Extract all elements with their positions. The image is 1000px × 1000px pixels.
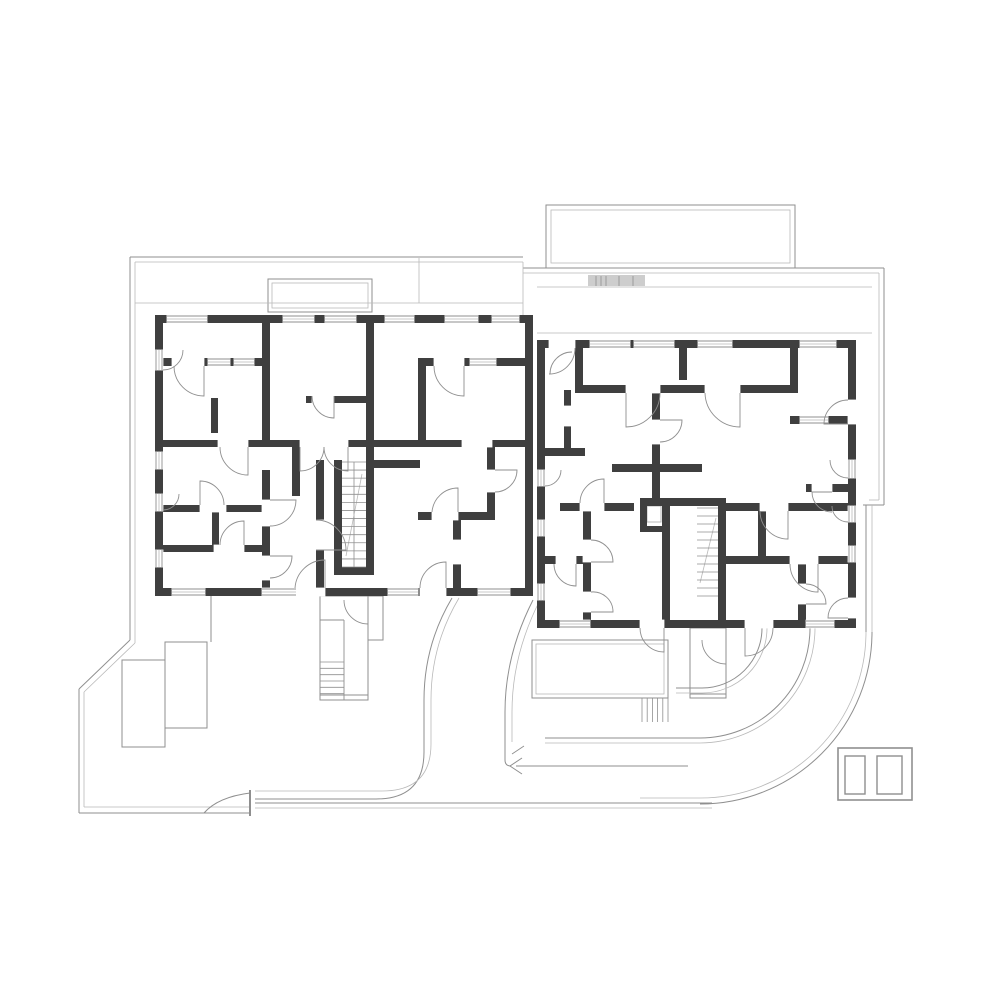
- door-opening: [487, 470, 496, 493]
- outline-rect: [845, 756, 865, 794]
- door-swing-arc: [702, 640, 726, 664]
- door-opening: [626, 385, 661, 394]
- door-swing-arc: [420, 562, 446, 588]
- walkway-curve: [204, 793, 250, 813]
- door-opening: [200, 505, 227, 513]
- door-swing-arc: [591, 540, 613, 562]
- door-swing-arc: [200, 481, 224, 505]
- door-opening: [214, 545, 245, 553]
- wall: [525, 315, 533, 596]
- door-opening: [564, 406, 572, 427]
- door-opening: [316, 520, 325, 551]
- outline-rect: [268, 279, 372, 312]
- wall: [334, 460, 342, 575]
- door-opening: [295, 588, 326, 597]
- wall: [575, 385, 798, 393]
- outline-rect: [647, 506, 661, 522]
- walkway-curve: [676, 628, 762, 688]
- wall: [262, 315, 270, 440]
- outline-rect: [532, 640, 668, 698]
- wall: [758, 511, 766, 560]
- walkway-curve: [255, 598, 452, 799]
- door-swing-arc: [270, 556, 292, 578]
- outline-rect: [122, 660, 165, 747]
- door-opening: [556, 556, 577, 565]
- door-swing-arc: [580, 479, 604, 503]
- wall: [612, 464, 702, 472]
- outline-rect: [368, 596, 383, 640]
- door-swing-arc: [545, 470, 561, 486]
- door-opening: [583, 540, 592, 563]
- wall: [790, 348, 798, 393]
- door-opening: [218, 440, 249, 448]
- wall: [374, 460, 420, 468]
- door-opening: [262, 556, 271, 581]
- door-opening: [453, 540, 462, 565]
- door-opening: [652, 420, 661, 445]
- wall: [718, 498, 726, 628]
- outline-rect: [272, 283, 368, 308]
- walkway-curve: [255, 598, 459, 791]
- door-swing-arc: [554, 564, 576, 586]
- door-opening: [790, 556, 819, 565]
- wall: [212, 512, 219, 545]
- door-opening: [462, 440, 493, 448]
- door-opening: [745, 620, 774, 629]
- wall: [662, 498, 670, 628]
- door-opening: [420, 588, 447, 597]
- door-swing-arc: [174, 366, 204, 396]
- door-swing-arc: [828, 598, 848, 618]
- wall: [545, 448, 585, 456]
- door-opening: [262, 500, 271, 527]
- door-swing-arc: [434, 366, 464, 396]
- outline-rect: [546, 205, 795, 268]
- door-swing-arc: [220, 447, 248, 475]
- outline-rect: [536, 644, 664, 694]
- architectural-floor-plan: [0, 0, 1000, 1000]
- door-opening: [580, 503, 605, 512]
- walkway-curve: [512, 746, 524, 754]
- door-opening: [848, 598, 857, 619]
- door-swing-arc: [495, 470, 517, 492]
- outline-rect: [551, 210, 790, 263]
- door-swing-arc: [432, 488, 458, 512]
- wall: [292, 441, 300, 496]
- hatched-wall-section: [588, 275, 645, 286]
- door-opening: [549, 340, 576, 349]
- door-opening: [705, 385, 741, 394]
- walkway-curve: [545, 628, 815, 743]
- door-opening: [640, 620, 665, 629]
- door-opening: [312, 396, 335, 404]
- walkway-curve: [545, 628, 810, 738]
- door-swing-arc: [591, 592, 613, 612]
- door-opening: [432, 512, 459, 521]
- door-swing-arc: [745, 628, 773, 656]
- wall: [652, 472, 660, 498]
- wall: [418, 358, 426, 440]
- door-swing-arc: [270, 500, 296, 526]
- door-swing-arc: [660, 420, 682, 442]
- wall: [155, 588, 533, 596]
- wall: [211, 398, 218, 433]
- wall: [366, 315, 374, 440]
- wall: [679, 348, 687, 380]
- door-swing-arc: [830, 460, 848, 478]
- door-opening: [434, 358, 465, 367]
- floor-plan-svg: [0, 0, 1000, 1000]
- wall: [640, 498, 726, 506]
- door-swing-arc: [324, 447, 348, 471]
- walkway-curve: [640, 632, 866, 798]
- door-swing-arc: [806, 584, 826, 604]
- door-opening: [812, 484, 833, 493]
- site-line: [84, 643, 135, 692]
- wall: [726, 556, 848, 564]
- door-swing-arc: [344, 600, 368, 624]
- door-opening: [848, 400, 857, 425]
- outline-rect: [165, 642, 207, 728]
- outline-rect: [877, 756, 902, 794]
- wall: [366, 447, 374, 575]
- walkway-curve: [700, 518, 716, 583]
- door-opening: [300, 440, 349, 448]
- door-swing-arc: [705, 393, 740, 427]
- door-swing-arc: [220, 521, 244, 545]
- wall: [848, 340, 856, 628]
- door-opening: [760, 503, 789, 512]
- door-opening: [583, 592, 592, 613]
- wall: [334, 567, 374, 575]
